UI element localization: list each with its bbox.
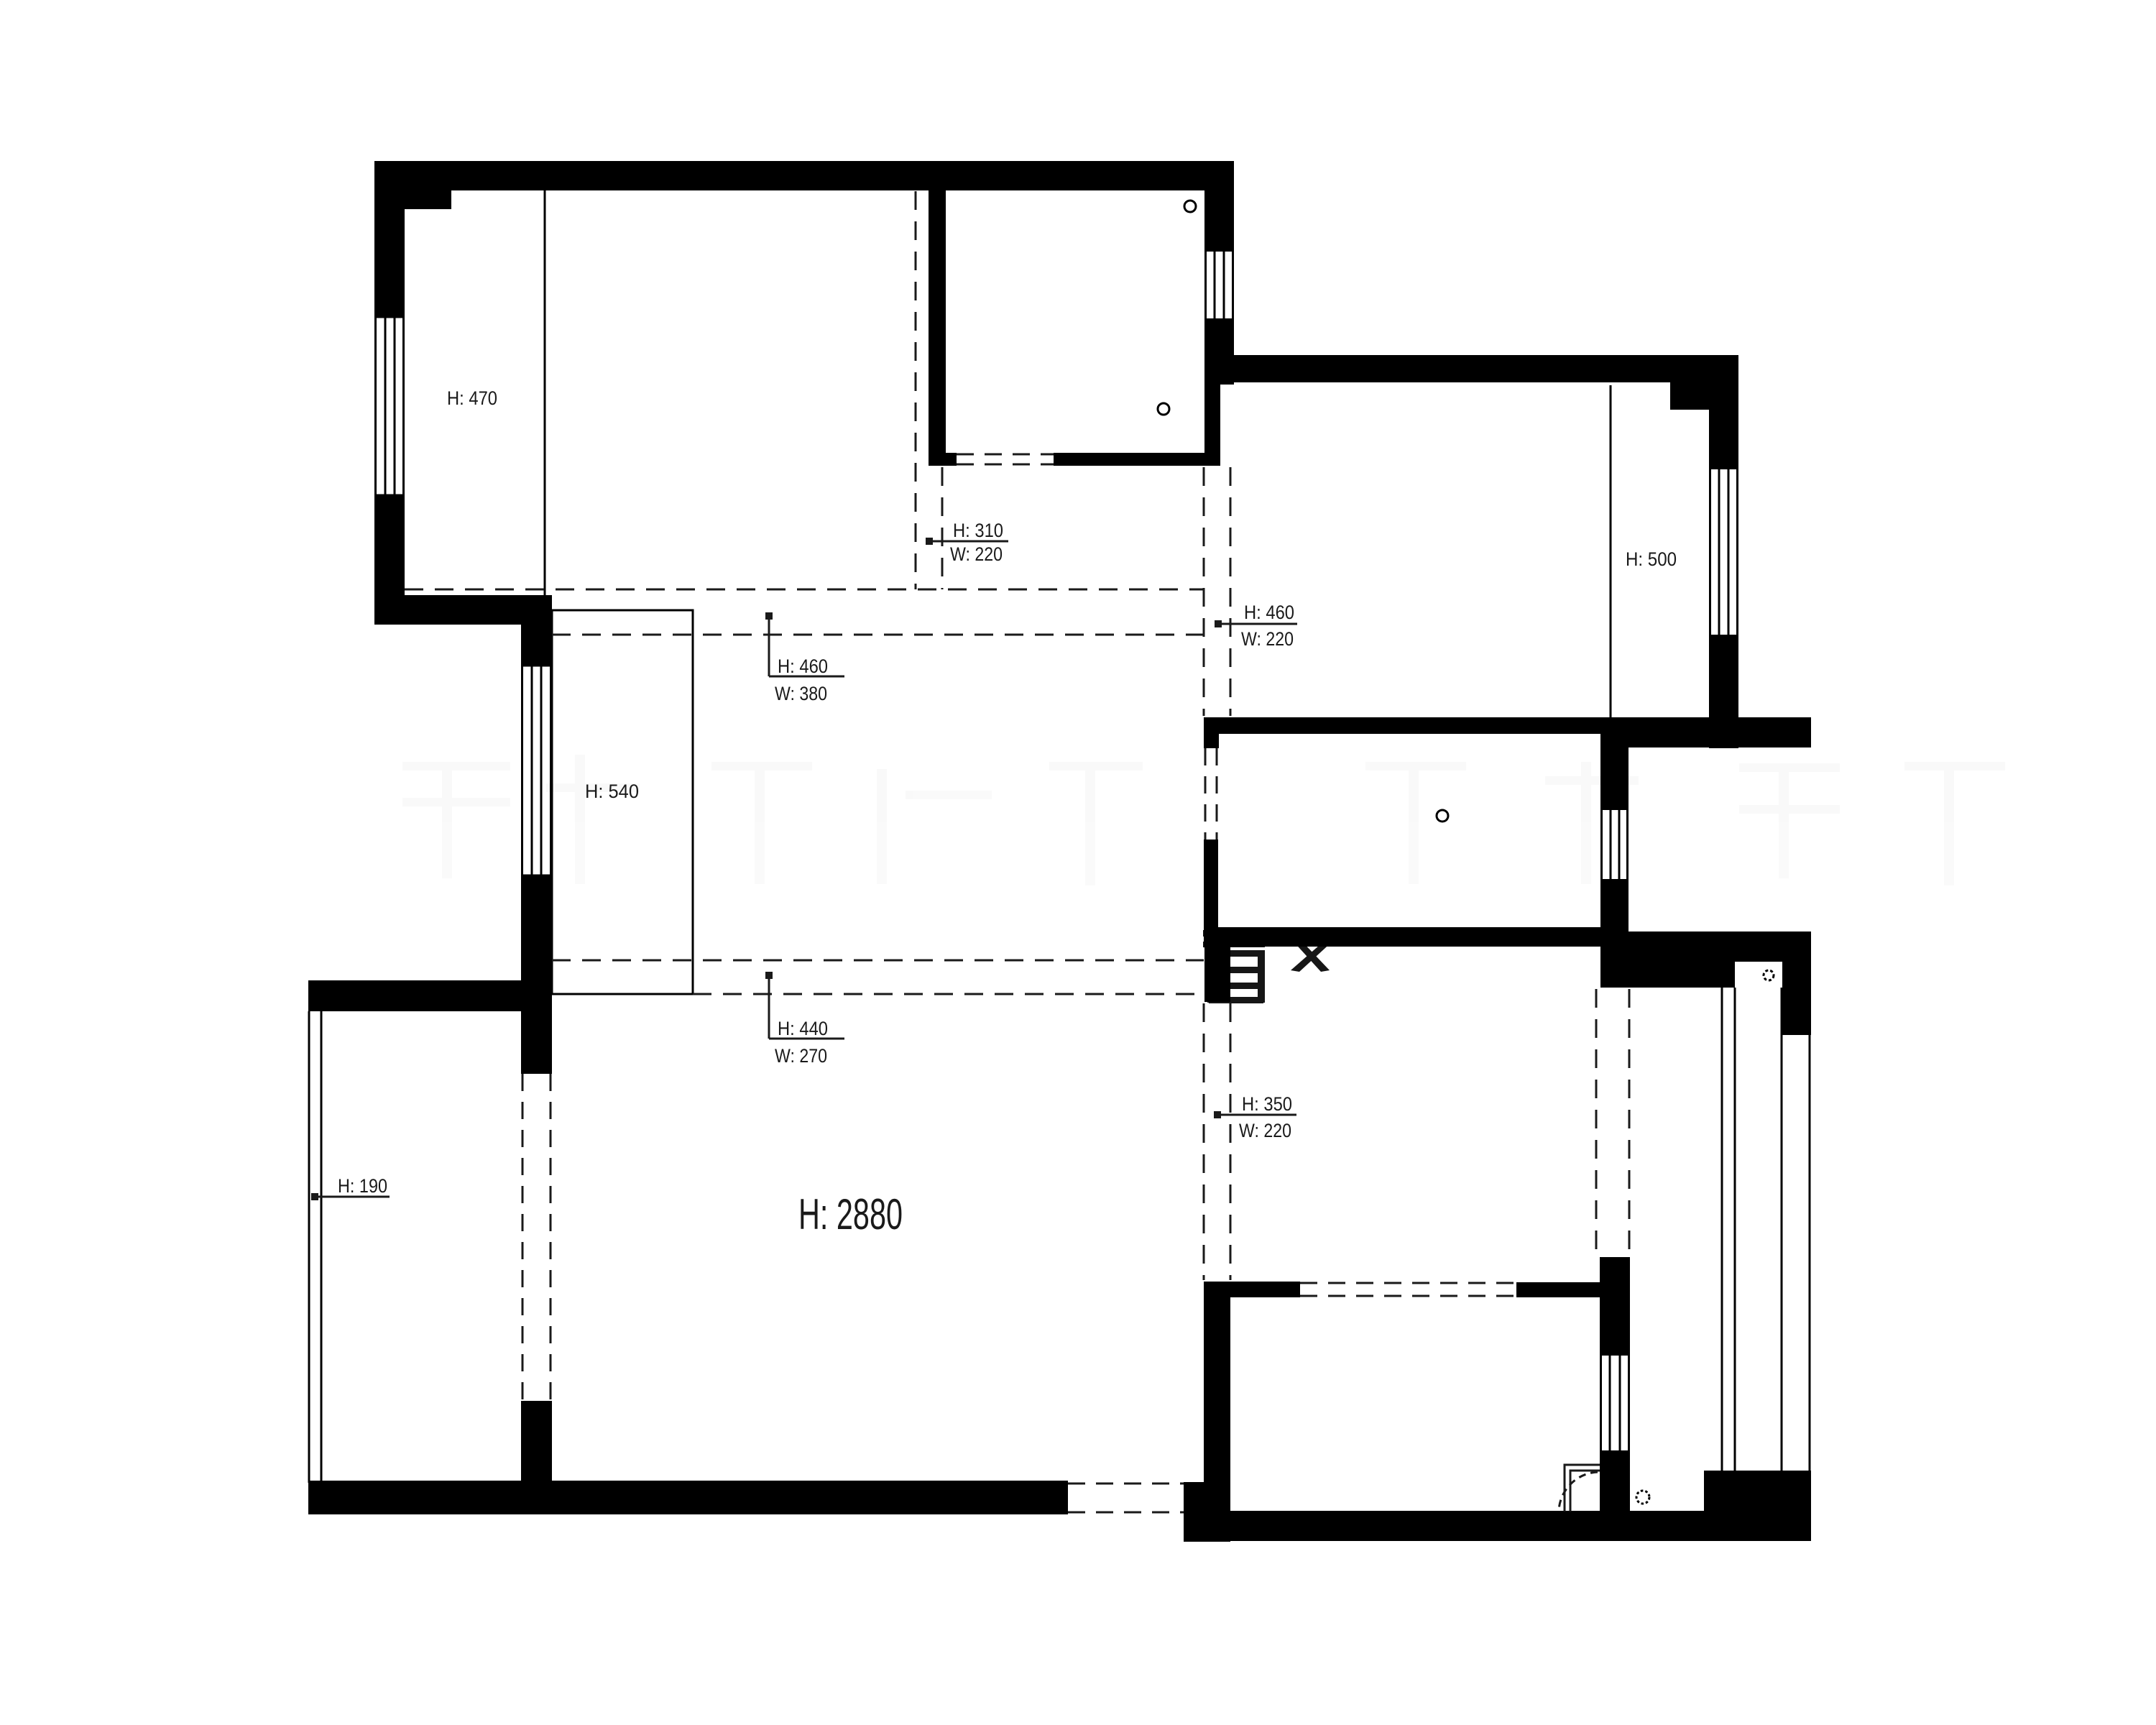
- svg-text:H: 460: H: 460: [778, 655, 828, 677]
- svg-text:W: 380: W: 380: [775, 683, 827, 704]
- svg-text:H: 460: H: 460: [1244, 602, 1294, 623]
- svg-text:W: 270: W: 270: [775, 1045, 827, 1067]
- svg-text:H: 190: H: 190: [338, 1175, 387, 1197]
- svg-text:H: 540: H: 540: [585, 781, 639, 802]
- svg-text:H: 470: H: 470: [447, 387, 497, 409]
- svg-text:W: 220: W: 220: [1241, 628, 1294, 650]
- svg-text:H: 310: H: 310: [953, 520, 1003, 541]
- svg-text:H: 500: H: 500: [1626, 548, 1677, 570]
- svg-text:H: 440: H: 440: [778, 1018, 828, 1039]
- svg-text:H: 2880: H: 2880: [798, 1190, 903, 1238]
- svg-text:W: 220: W: 220: [950, 543, 1003, 565]
- svg-text:W: 220: W: 220: [1239, 1120, 1291, 1141]
- svg-text:H: 350: H: 350: [1242, 1093, 1292, 1115]
